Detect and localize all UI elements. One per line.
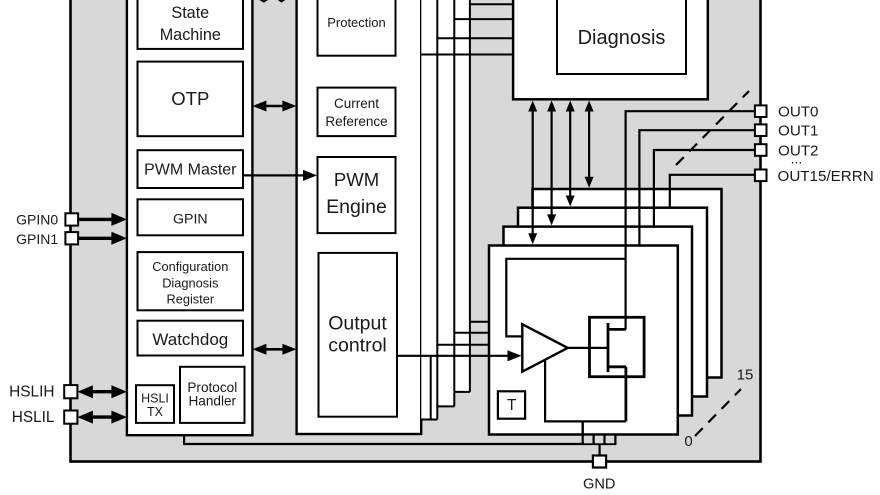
svg-text:OTP: OTP (171, 88, 209, 109)
svg-text:GND: GND (583, 476, 615, 492)
svg-text:Reference: Reference (325, 114, 387, 129)
svg-text:PWM: PWM (334, 169, 379, 190)
svg-text:Engine: Engine (326, 196, 387, 218)
svg-text:Watchdog: Watchdog (152, 330, 228, 349)
svg-text:PWM Master: PWM Master (144, 162, 237, 179)
svg-text:15: 15 (737, 367, 754, 384)
svg-text:OUT15/ERRN: OUT15/ERRN (778, 168, 874, 185)
svg-text:...: ... (791, 151, 803, 167)
svg-text:HSLIL: HSLIL (12, 409, 55, 426)
svg-text:0: 0 (684, 433, 692, 450)
svg-text:Handler: Handler (188, 394, 236, 409)
svg-text:Configuration: Configuration (152, 259, 228, 274)
svg-text:HSLIH: HSLIH (9, 384, 54, 401)
svg-text:Current: Current (334, 96, 379, 111)
svg-text:OUT1: OUT1 (778, 123, 819, 140)
svg-text:OUT0: OUT0 (778, 104, 819, 121)
svg-text:Protection: Protection (327, 15, 386, 30)
svg-text:Register: Register (166, 292, 214, 307)
svg-text:Machine: Machine (160, 26, 221, 44)
svg-text:GPIN: GPIN (173, 211, 208, 227)
svg-text:TX: TX (147, 405, 164, 419)
svg-text:GPIN1: GPIN1 (16, 231, 58, 247)
svg-text:State: State (171, 4, 209, 22)
svg-text:HSLI: HSLI (141, 392, 169, 406)
svg-text:control: control (328, 335, 387, 357)
svg-text:GPIN0: GPIN0 (16, 212, 58, 228)
svg-text:T: T (507, 397, 516, 414)
svg-text:Diagnosis: Diagnosis (162, 275, 218, 290)
svg-text:Diagnosis: Diagnosis (578, 27, 666, 49)
svg-text:Output: Output (328, 312, 387, 334)
